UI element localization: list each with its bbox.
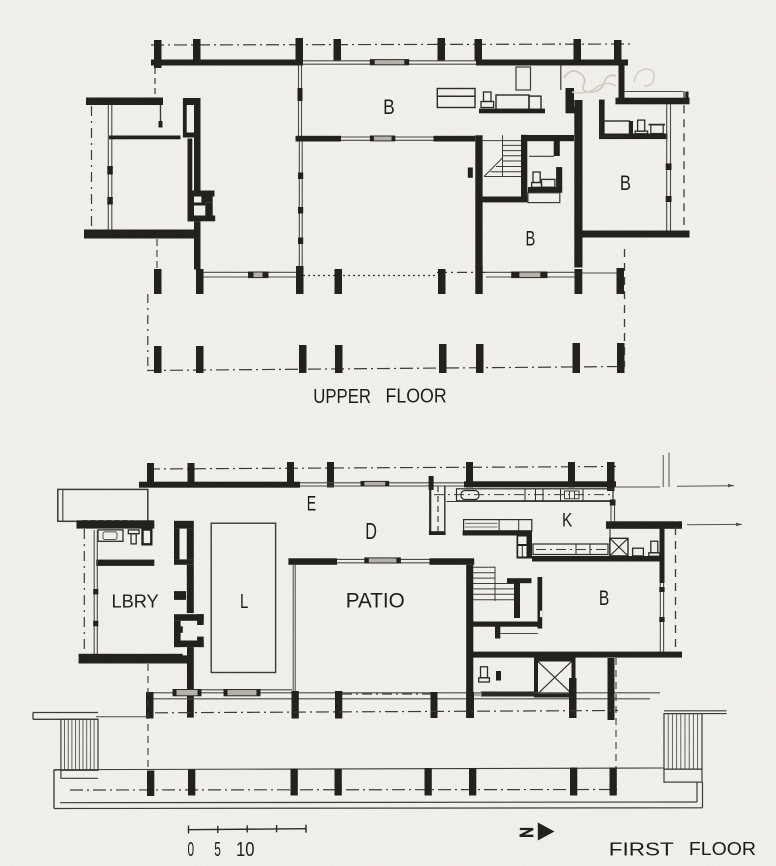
svg-text:0: 0 xyxy=(188,839,195,861)
svg-text:FLOOR: FLOOR xyxy=(689,838,756,859)
svg-text:LBRY: LBRY xyxy=(112,591,159,612)
svg-text:B: B xyxy=(383,96,395,119)
svg-text:UPPER: UPPER xyxy=(313,385,371,408)
svg-text:B: B xyxy=(620,172,631,195)
svg-text:FLOOR: FLOOR xyxy=(386,385,447,408)
svg-text:PATIO: PATIO xyxy=(346,590,405,613)
svg-text:K: K xyxy=(562,510,573,531)
svg-text:B: B xyxy=(526,227,536,250)
svg-text:5: 5 xyxy=(214,839,221,861)
svg-text:D: D xyxy=(365,518,377,544)
svg-text:FIRST: FIRST xyxy=(609,839,674,860)
svg-text:E: E xyxy=(307,492,316,515)
svg-text:L: L xyxy=(240,590,248,613)
svg-text:B: B xyxy=(599,587,609,610)
svg-text:10: 10 xyxy=(236,839,255,861)
